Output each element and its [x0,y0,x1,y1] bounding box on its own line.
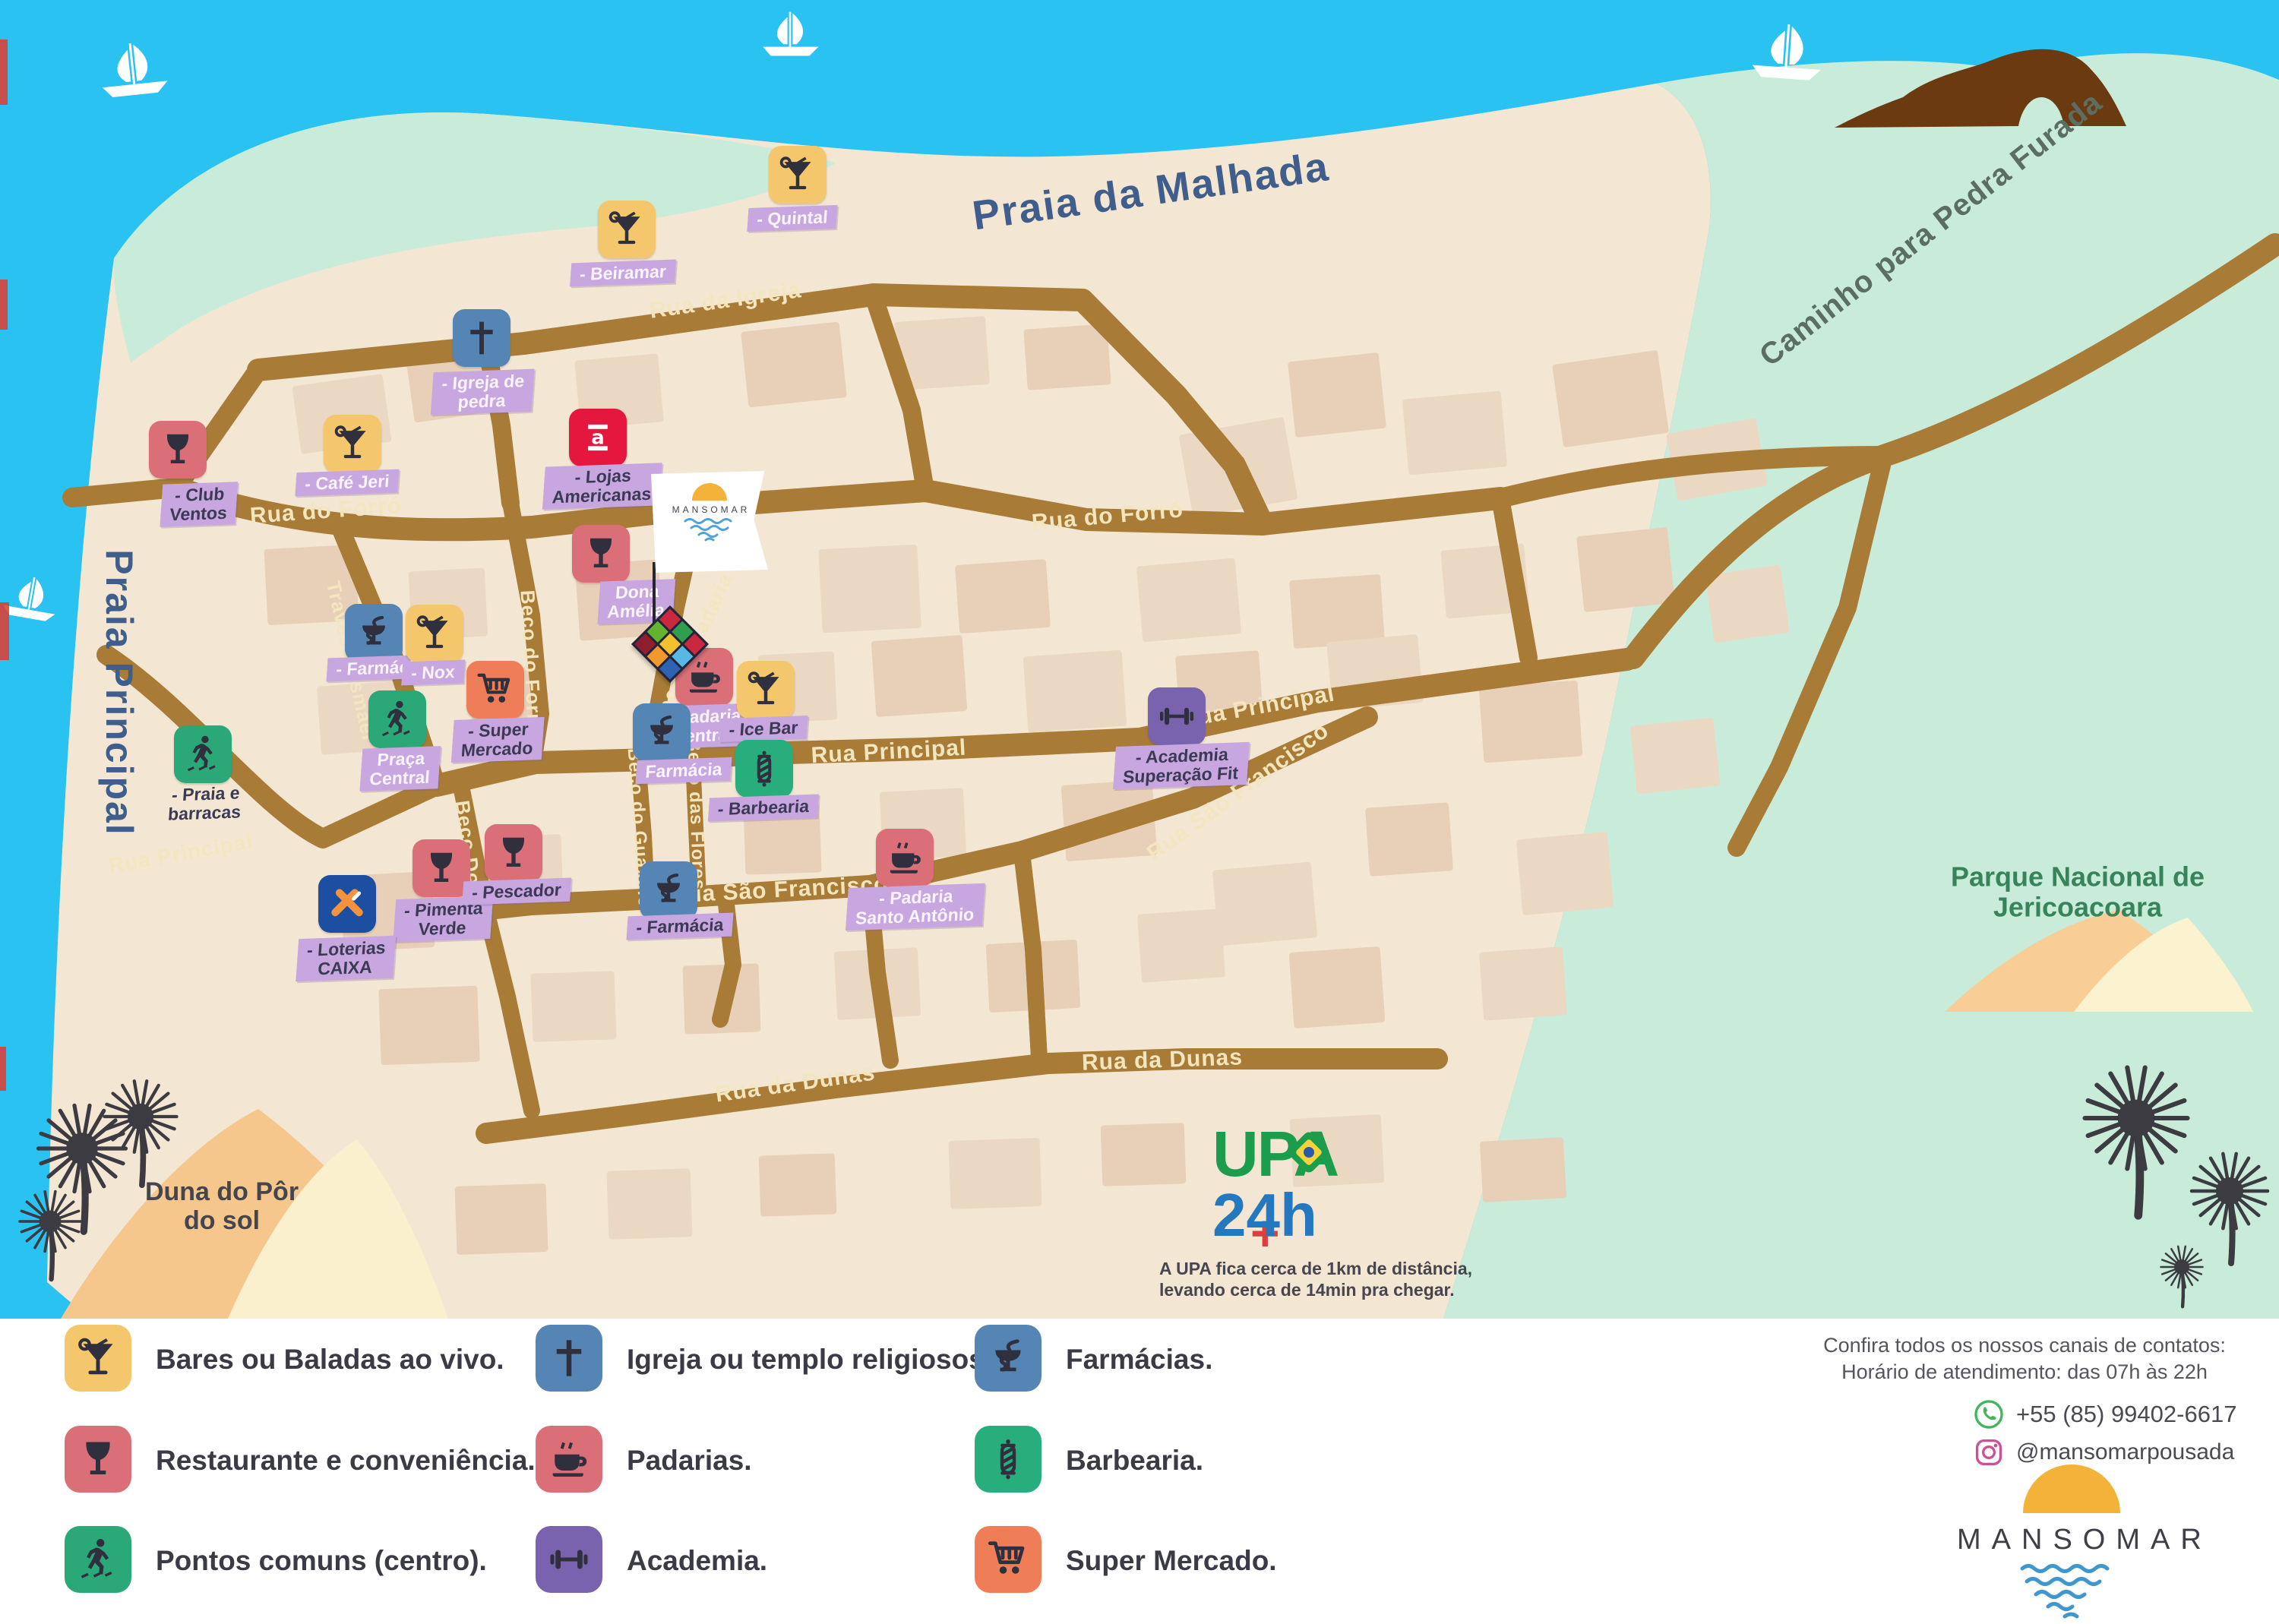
dona-amelia-marker[interactable] [572,525,630,583]
legend-item-cocktail: Bares ou Baladas ao vivo. [65,1325,520,1395]
upa-title: UPA [1212,1126,1486,1183]
beiramar-marker[interactable] [598,201,656,258]
legend-item-hygieia: Farmácias. [975,1325,1430,1395]
flag-brand-name: MANSOMAR [672,504,751,515]
hygieia-icon [975,1325,1042,1392]
mansomar-logo: MANSOMAR [1946,1464,2197,1624]
praca-central-label: PraçaCentral [359,746,441,791]
cocktail-icon [332,423,373,464]
nox-label: - Nox [401,660,465,686]
instagram-handle: @mansomarpousada [2016,1439,2234,1465]
coffee-icon [536,1426,602,1493]
hygieia-icon [641,712,682,753]
cart-icon [975,1526,1042,1593]
praca-central-marker[interactable] [368,690,426,748]
cocktail-icon [745,669,786,710]
legend-item-wine: Restaurante e conveniência. [65,1426,520,1496]
hygieia-icon [353,612,394,653]
wine-icon [421,848,462,889]
upa-caption: A UPA fica cerca de 1km de distância, le… [1159,1258,1486,1302]
cafe-jeri-marker[interactable] [324,415,381,472]
praia-principal-label: Praia Principal [98,549,141,836]
walk-icon [377,699,418,740]
cocktail-icon [414,613,455,654]
upa-subtitle: + 24h [1212,1186,1486,1244]
farmacia-sao-francisco-label: - Farmácia [626,913,733,940]
wine-icon [157,429,198,470]
wine-icon [65,1426,131,1493]
hygieia-icon [648,870,689,911]
duna-por-do-sol-label: Duna do Pôr do sol [145,1177,299,1235]
cocktail-icon [606,209,647,250]
cafe-jeri-label: - Café Jeri [295,469,399,497]
legend-footer: Bares ou Baladas ao vivo.Restaurante e c… [0,1319,2279,1615]
legend-label: Pontos comuns (centro). [156,1545,487,1577]
padaria-santo-antonio-marker[interactable] [876,829,934,886]
igreja-de-pedra-label: - Igreja depedra [431,369,535,415]
club-ventos-marker[interactable] [149,421,207,479]
legend-label: Restaurante e conveniência. [156,1445,536,1477]
legend-item-walk: Pontos comuns (centro). [65,1526,520,1596]
whatsapp-number: +55 (85) 99402-6617 [2016,1401,2236,1428]
farmacia-rua-principal-marker[interactable] [633,703,691,761]
loterias-caixa-marker[interactable] [318,875,376,933]
pescador-marker[interactable] [485,824,542,882]
legend-label: Super Mercado. [1066,1545,1277,1577]
legend-item-cross: Igreja ou templo religiosos. [536,1325,991,1395]
whatsapp-row[interactable]: +55 (85) 99402-6617 [1972,1398,2236,1431]
farmacia-travessa-marker[interactable] [345,604,403,662]
edge-artifact [0,602,9,660]
quintal-label: - Quintal [747,205,837,232]
map-area: Praia da Malhada Praia Principal Parque … [0,0,2279,1319]
lojas-americanas-label: - LojasAmericanas [542,463,662,510]
legend-label: Bares ou Baladas ao vivo. [156,1344,504,1376]
academia-superacao-fit-label: - AcademiaSuperação Fit [1113,742,1250,789]
beiramar-label: - Beiramar [570,260,676,287]
praia-e-barracas-marker[interactable] [174,725,232,783]
academia-superacao-fit-marker[interactable] [1148,687,1206,745]
barbearia-marker[interactable] [735,740,793,798]
barber-icon [975,1426,1042,1493]
ice-bar-marker[interactable] [737,661,795,719]
svg-text:a: a [591,427,604,450]
sun-icon [2023,1464,2120,1513]
legend-item-dumbbell: Academia. [536,1526,991,1596]
barbearia-label: - Barbearia [708,794,819,821]
pimenta-verde-marker[interactable] [412,839,470,897]
club-ventos-label: - ClubVentos [160,482,238,527]
edge-artifact [0,280,8,330]
wine-icon [580,533,621,574]
sun-icon [692,483,727,501]
edge-artifact [0,1047,6,1091]
loterias-caixa-label: - LoteriasCAIXA [296,936,395,982]
cross-icon [536,1325,602,1392]
legend-label: Farmácias. [1066,1344,1212,1376]
legend-item-coffee: Padarias. [536,1426,991,1496]
farmacia-sao-francisco-marker[interactable] [640,861,697,919]
walk-icon [65,1526,131,1593]
caixa-icon [327,883,368,924]
dumbbell-icon [1156,696,1197,737]
igreja-de-pedra-marker[interactable] [453,309,510,367]
super-mercado-label: - SuperMercado [451,717,544,763]
cross-icon [461,318,502,359]
padaria-santo-antonio-label: - PadariaSanto Antônio [846,883,985,930]
cart-icon [475,669,516,710]
legend-label: Barbearia. [1066,1445,1203,1477]
lojas-americanas-marker[interactable]: a [569,409,627,466]
praia-e-barracas-label: - Praia ebarracas [158,781,252,826]
waves-icon [2007,1561,2136,1620]
wine-icon [493,833,534,874]
legend-item-barber: Barbearia. [975,1426,1430,1496]
cocktail-icon [65,1325,131,1392]
legend-label: Academia. [627,1545,767,1577]
waves-icon [681,517,738,542]
nox-marker[interactable] [406,605,463,662]
whatsapp-icon [1972,1398,2006,1431]
dumbbell-icon [536,1526,602,1593]
barber-icon [744,748,785,789]
cocktail-icon [777,154,818,195]
contact-heading: Confira todos os nossos canais de contat… [1759,1332,2279,1385]
edge-artifact [0,39,8,105]
farmacia-rua-principal-label: Farmácia [635,757,732,784]
brand-name: MANSOMAR [1957,1524,2197,1556]
legend-label: Igreja ou templo religiosos. [627,1344,992,1376]
parque-nacional-label: Parque Nacional de Jericoacoara [1951,862,2205,924]
upa-24h-badge: UPA + 24h A UPA fica cerca de 1km de dis… [1212,1126,1486,1301]
legend-item-cart: Super Mercado. [975,1526,1430,1596]
quintal-marker[interactable] [769,146,827,204]
pescador-label: - Pescador [462,877,571,905]
coffee-icon [884,837,925,878]
walk-icon [182,734,223,775]
americanas-icon: a [577,417,618,458]
ice-bar-label: - Ice Bar [719,716,808,742]
legend-label: Padarias. [627,1445,752,1477]
super-mercado-marker[interactable] [466,661,524,719]
